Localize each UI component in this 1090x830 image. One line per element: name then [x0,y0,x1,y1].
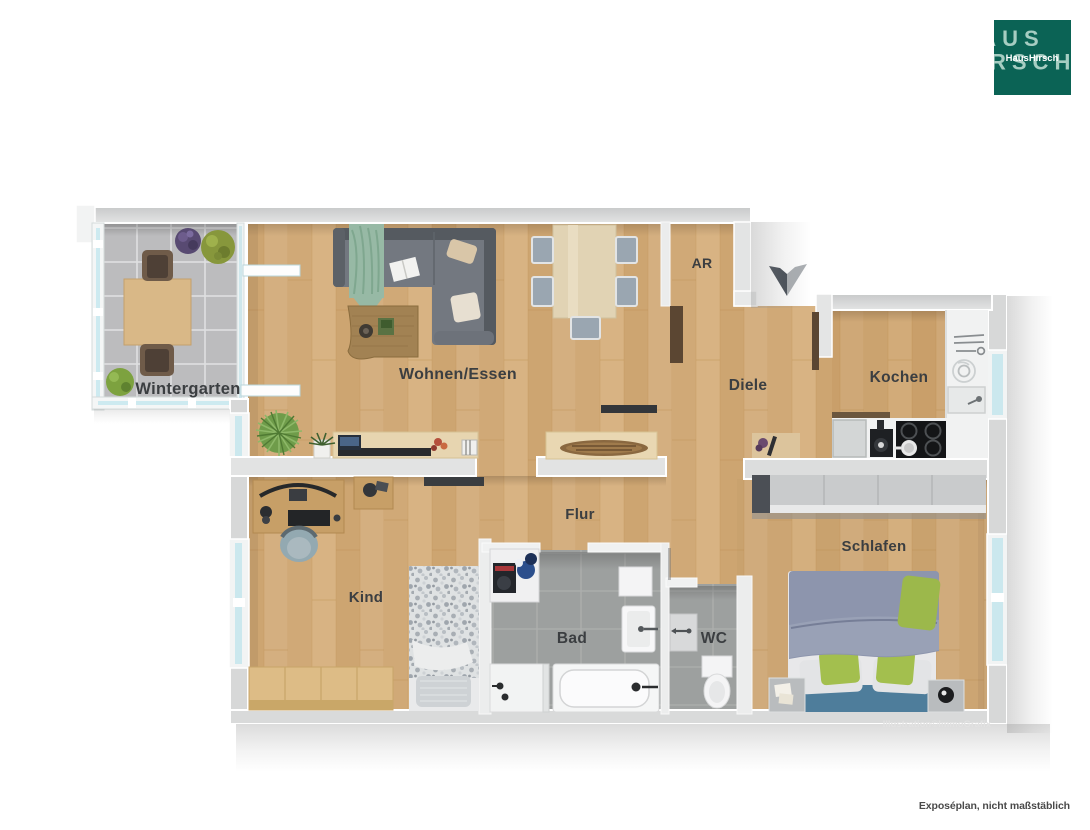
svg-text:Bad: Bad [557,630,587,647]
svg-text:Kochen: Kochen [870,369,929,386]
svg-text:Flur: Flur [565,506,595,523]
svg-text:WC: WC [701,630,727,647]
svg-text:Schlafen: Schlafen [842,538,907,555]
svg-text:Diele: Diele [729,377,768,394]
svg-text:Wohnen/Essen: Wohnen/Essen [399,366,517,383]
svg-text:Exposéplan, nicht maßstäblich: Exposéplan, nicht maßstäblich [919,800,1070,812]
svg-text:Wintergarten: Wintergarten [135,380,240,398]
svg-text:HausHirsch: HausHirsch [1006,53,1059,64]
svg-text:Illustration©ImmoGrafix: Illustration©ImmoGrafix [883,719,992,730]
svg-text:Kind: Kind [349,589,384,606]
svg-text:AR: AR [692,255,713,271]
